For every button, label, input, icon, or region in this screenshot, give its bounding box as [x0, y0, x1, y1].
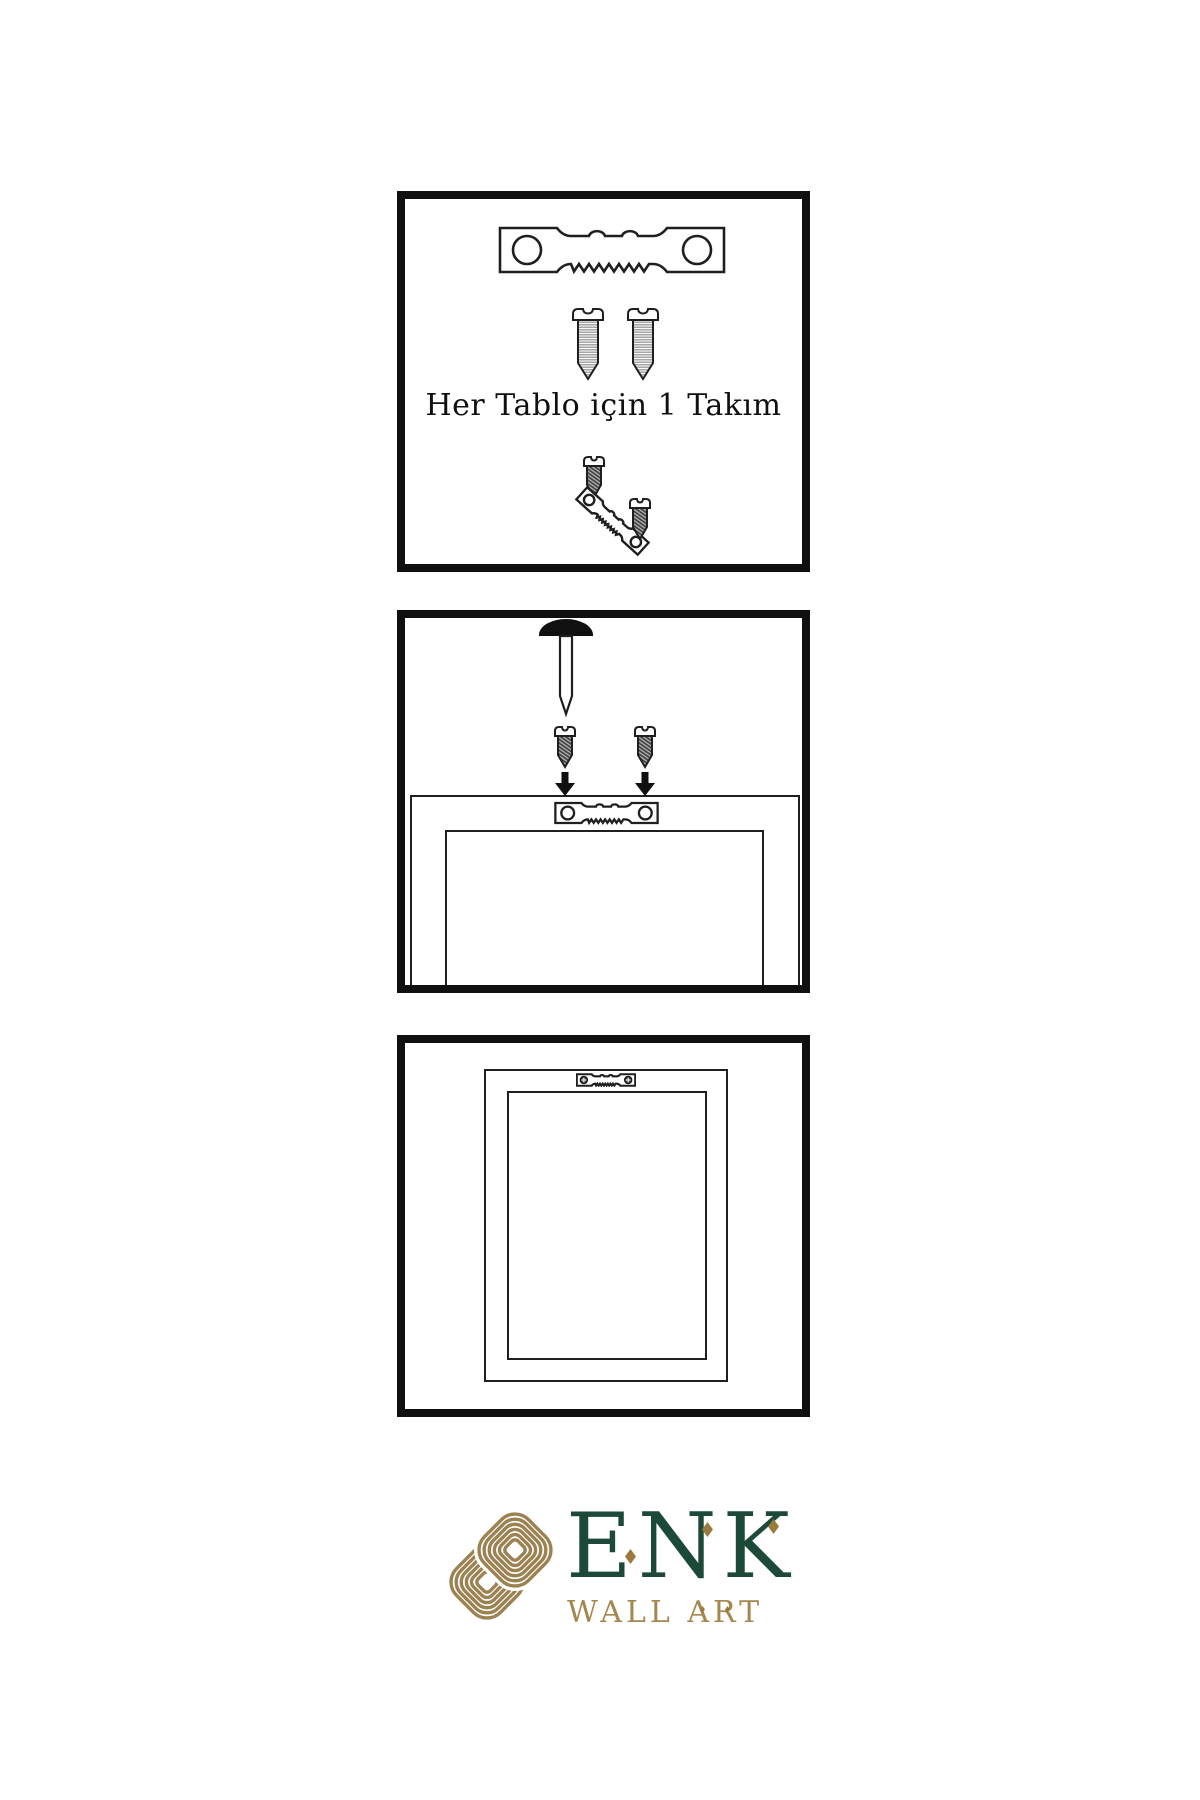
screw-icon: [571, 306, 605, 382]
step-3-panel: [397, 1035, 810, 1417]
mounted-screw-head-icon: [625, 1076, 632, 1083]
brand-name: ENK: [566, 1502, 796, 1592]
brand-subtitle: WALL ART: [567, 1598, 763, 1628]
step-1-caption: Her Tablo için 1 Takım: [405, 388, 802, 424]
screw-icon: [627, 496, 653, 542]
hung-frame-inner: [507, 1091, 707, 1360]
knot-logo-icon: [441, 1500, 561, 1632]
sawtooth-hanger-icon: [554, 801, 659, 825]
mounted-sawtooth-hanger-icon: [576, 1073, 636, 1087]
screw-icon: [552, 724, 578, 770]
mounted-screw-head-icon: [580, 1076, 587, 1083]
arrow-down-icon: [635, 772, 655, 796]
wall-nail-icon: [538, 618, 594, 720]
screw-icon: [632, 724, 658, 770]
step-2-panel: [397, 610, 810, 993]
arrow-down-icon: [555, 772, 575, 796]
frame-back-inner: [445, 830, 764, 993]
sawtooth-hanger-icon: [497, 224, 727, 276]
instruction-sheet: Her Tablo için 1 Takım: [0, 0, 1200, 1800]
step-1-panel: Her Tablo için 1 Takım: [397, 191, 810, 572]
screw-icon: [626, 306, 660, 382]
